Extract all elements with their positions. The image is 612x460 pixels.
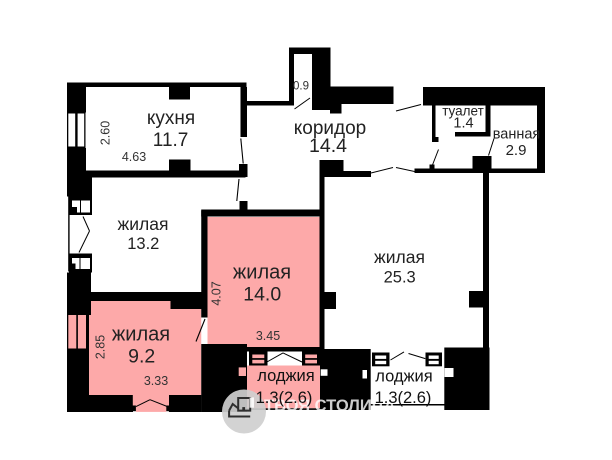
svg-text:14.0: 14.0 [243, 284, 281, 306]
svg-text:25.3: 25.3 [384, 269, 416, 287]
svg-text:2.60: 2.60 [99, 121, 113, 145]
svg-text:11.7: 11.7 [153, 130, 189, 151]
svg-text:13.2: 13.2 [127, 235, 159, 253]
svg-text:ванная: ванная [493, 127, 541, 143]
svg-text:4.07: 4.07 [210, 281, 224, 305]
svg-text:лоджия: лоджия [257, 367, 314, 385]
svg-text:1.3(2.6): 1.3(2.6) [375, 389, 432, 407]
svg-text:14.4: 14.4 [309, 135, 347, 157]
svg-text:2.85: 2.85 [94, 335, 108, 359]
svg-text:1.4: 1.4 [453, 116, 473, 132]
svg-text:9.2: 9.2 [128, 345, 155, 367]
svg-text:лоджия: лоджия [375, 368, 432, 386]
svg-text:2.9: 2.9 [506, 142, 527, 159]
svg-text:1.3(2.6): 1.3(2.6) [256, 389, 313, 407]
svg-text:жилая: жилая [374, 247, 425, 267]
svg-text:жилая: жилая [112, 323, 170, 345]
svg-text:4.63: 4.63 [122, 150, 146, 164]
svg-text:3.45: 3.45 [256, 329, 280, 343]
svg-text:3.33: 3.33 [144, 374, 168, 388]
svg-text:0.9: 0.9 [293, 81, 309, 93]
svg-text:кухня: кухня [147, 108, 195, 129]
svg-text:жилая: жилая [118, 214, 169, 234]
svg-text:жилая: жилая [233, 261, 291, 283]
